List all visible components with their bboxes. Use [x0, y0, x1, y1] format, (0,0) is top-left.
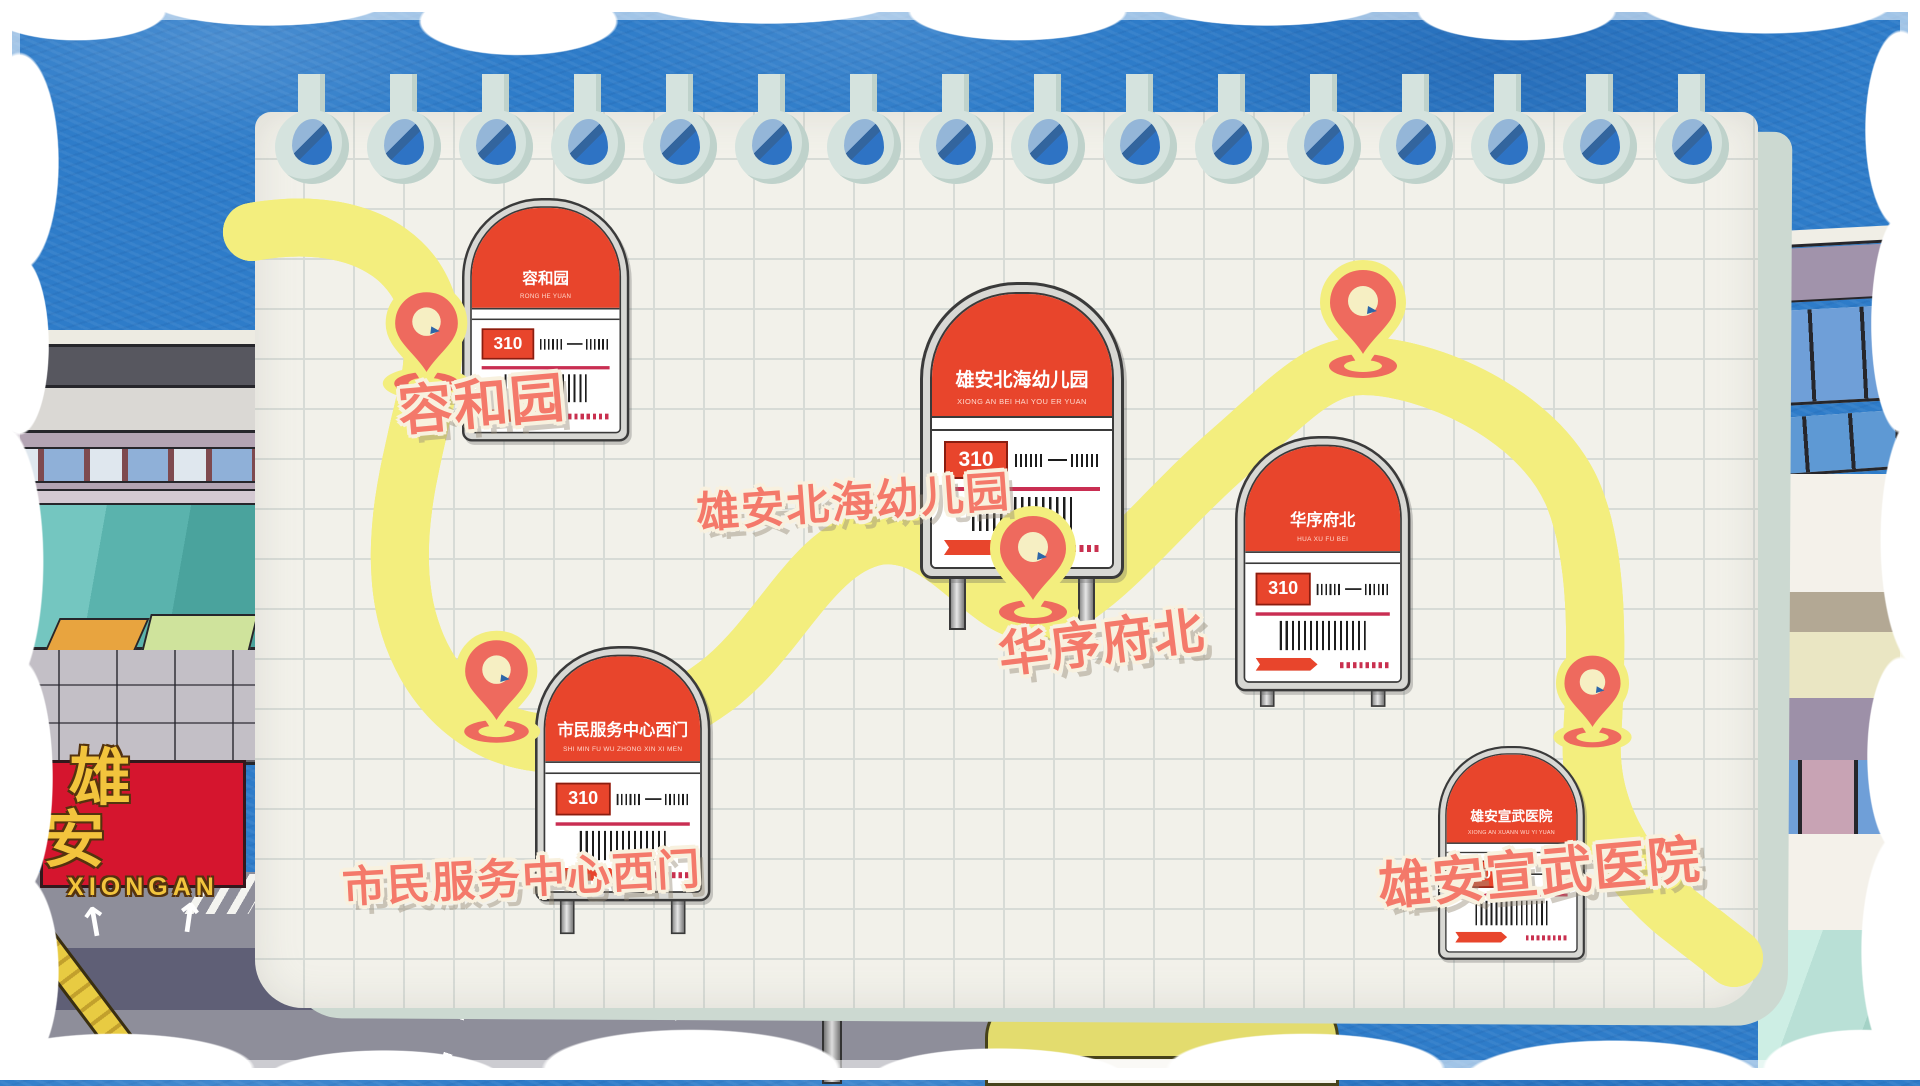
sign-face: 华序府北 HUA XU FU BEI 310 — [1244, 445, 1402, 683]
location-pin-icon — [983, 500, 1083, 630]
sign-frame: 华序府北 HUA XU FU BEI 310 — [1235, 436, 1410, 691]
stop-pinyin: SHI MIN FU WU ZHONG XIN XI MEN — [563, 745, 682, 753]
sign-pole — [1552, 954, 1564, 957]
sign-header: 雄安宣武医院 XIONG AN XUANN WU YI YUAN — [1447, 755, 1577, 843]
red-rule — [556, 822, 690, 825]
sign-divider — [1245, 551, 1400, 564]
dot-row — [562, 414, 610, 420]
barcode — [617, 784, 690, 813]
sign-pole — [1260, 685, 1275, 707]
arrow-marker — [1256, 658, 1318, 671]
stop-name: 市民服务中心西门 — [557, 717, 688, 740]
sign-pole — [949, 571, 966, 630]
sign-divider — [932, 416, 1112, 431]
red-rule — [1256, 612, 1390, 615]
arrow-marker — [1455, 932, 1507, 943]
barcode — [540, 330, 610, 358]
location-pin-icon — [1550, 642, 1635, 753]
sign-header: 华序府北 HUA XU FU BEI — [1245, 446, 1400, 551]
sign-header: 市民服务中心西门 SHI MIN FU WU ZHONG XIN XI MEN — [545, 656, 700, 761]
sign-divider — [472, 308, 620, 320]
barcode — [1015, 443, 1100, 477]
stop-label: 容和园 — [396, 371, 568, 439]
sign-body: 310 — [1245, 564, 1400, 681]
sign-pole — [1459, 954, 1471, 957]
barcode — [1317, 574, 1390, 603]
sign-pole — [592, 435, 606, 438]
stop-pinyin: HUA XU FU BEI — [1297, 535, 1348, 543]
sign-header: 容和园 RONG HE YUAN — [472, 208, 620, 308]
sign-divider — [545, 761, 700, 774]
route-number-badge: 310 — [556, 783, 611, 816]
sign-pole — [1371, 685, 1386, 707]
location-pin-icon — [449, 625, 544, 749]
location-pin-icon — [1313, 254, 1413, 384]
stop-pinyin: XIONG AN BEI HAI YOU ER YUAN — [957, 397, 1087, 406]
stop-name: 雄安北海幼儿园 — [955, 365, 1088, 392]
stop-name: 华序府北 — [1290, 507, 1355, 530]
bus-stop-sign: 华序府北 HUA XU FU BEI 310 — [1235, 436, 1410, 691]
dot-row — [1526, 935, 1568, 940]
barcode — [1280, 621, 1366, 650]
stop-name: 容和园 — [522, 266, 569, 288]
sign-pole — [671, 895, 686, 935]
route-number-badge: 310 — [1256, 573, 1311, 606]
dot-row — [1340, 662, 1390, 668]
route-number-badge: 310 — [482, 328, 534, 359]
sign-header: 雄安北海幼儿园 XIONG AN BEI HAI YOU ER YUAN — [932, 294, 1112, 416]
stop-name: 雄安宣武医院 — [1470, 806, 1552, 825]
stop-pinyin: XIONG AN XUANN WU YI YUAN — [1468, 829, 1555, 835]
stop-pinyin: RONG HE YUAN — [520, 292, 571, 299]
